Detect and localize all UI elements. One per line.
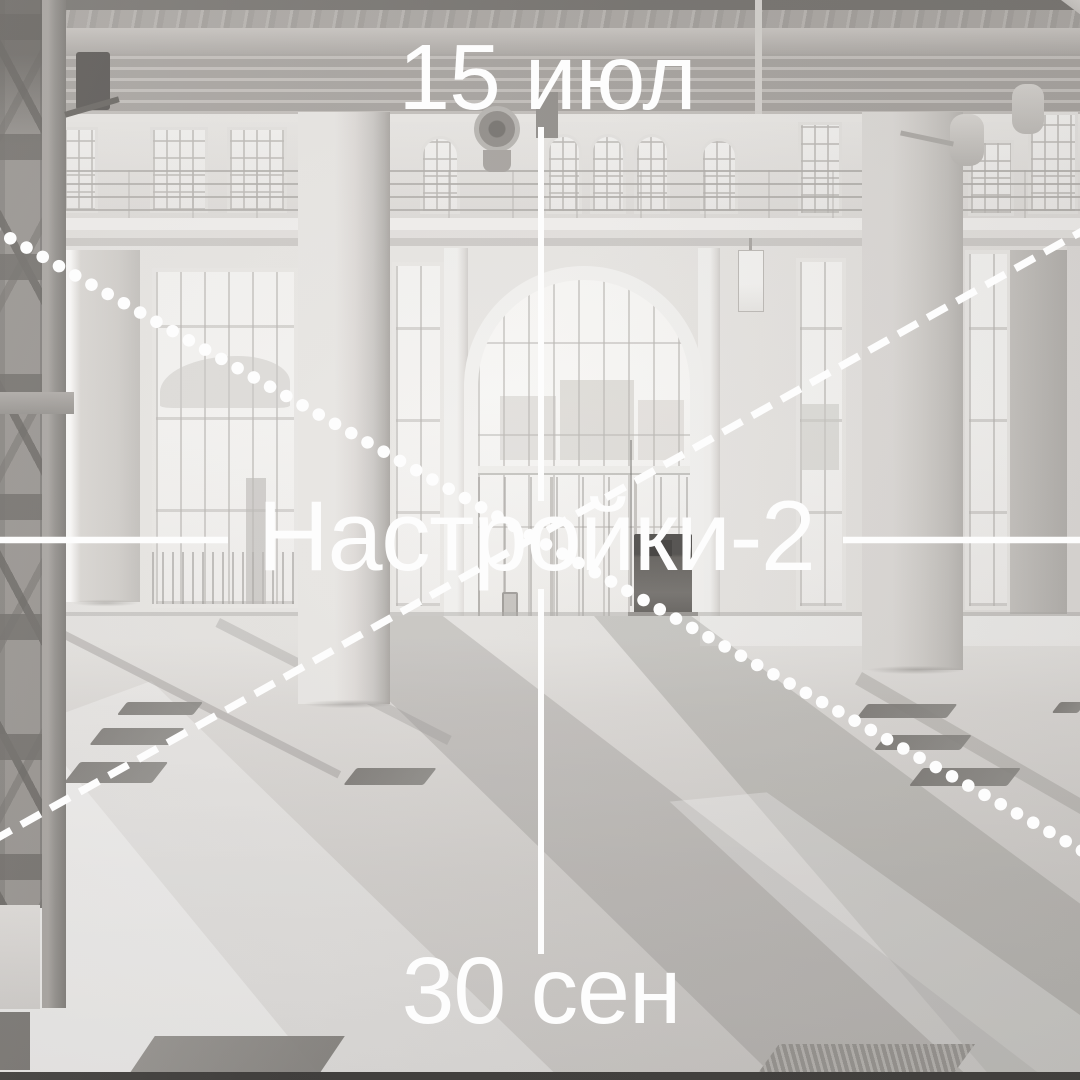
start-date-label: 15 июл [0, 31, 1080, 124]
floor-plate [909, 768, 1021, 786]
spotlight-body [483, 150, 511, 172]
floor-plate [64, 762, 168, 783]
column-contact-shadow [284, 698, 414, 710]
arched-window-transom [478, 466, 690, 475]
column-contact-shadow [846, 664, 986, 676]
floor-plate [1052, 702, 1080, 713]
column-left [298, 112, 390, 704]
scaffold-crossbeam [0, 392, 74, 414]
floor-plate [343, 768, 436, 785]
exhibition-title: Настройки-2 [0, 486, 1080, 585]
floor-plate [874, 735, 972, 750]
poster: 15 июл Настройки-2 30 сен [0, 0, 1080, 1080]
photo-bottom-edge [0, 1072, 1080, 1080]
hanging-panel [738, 250, 764, 312]
column-contact-shadow [58, 598, 153, 608]
floor-plate [117, 702, 203, 715]
window-city-view [801, 404, 839, 470]
scaffold-tower [0, 0, 46, 908]
hanging-panel-stem [749, 238, 752, 250]
floor-plate [89, 728, 184, 745]
ceiling-dark-strip [0, 0, 1080, 10]
end-date-label: 30 сен [0, 944, 1080, 1039]
column-right [862, 112, 963, 670]
floor-plate [857, 704, 958, 718]
